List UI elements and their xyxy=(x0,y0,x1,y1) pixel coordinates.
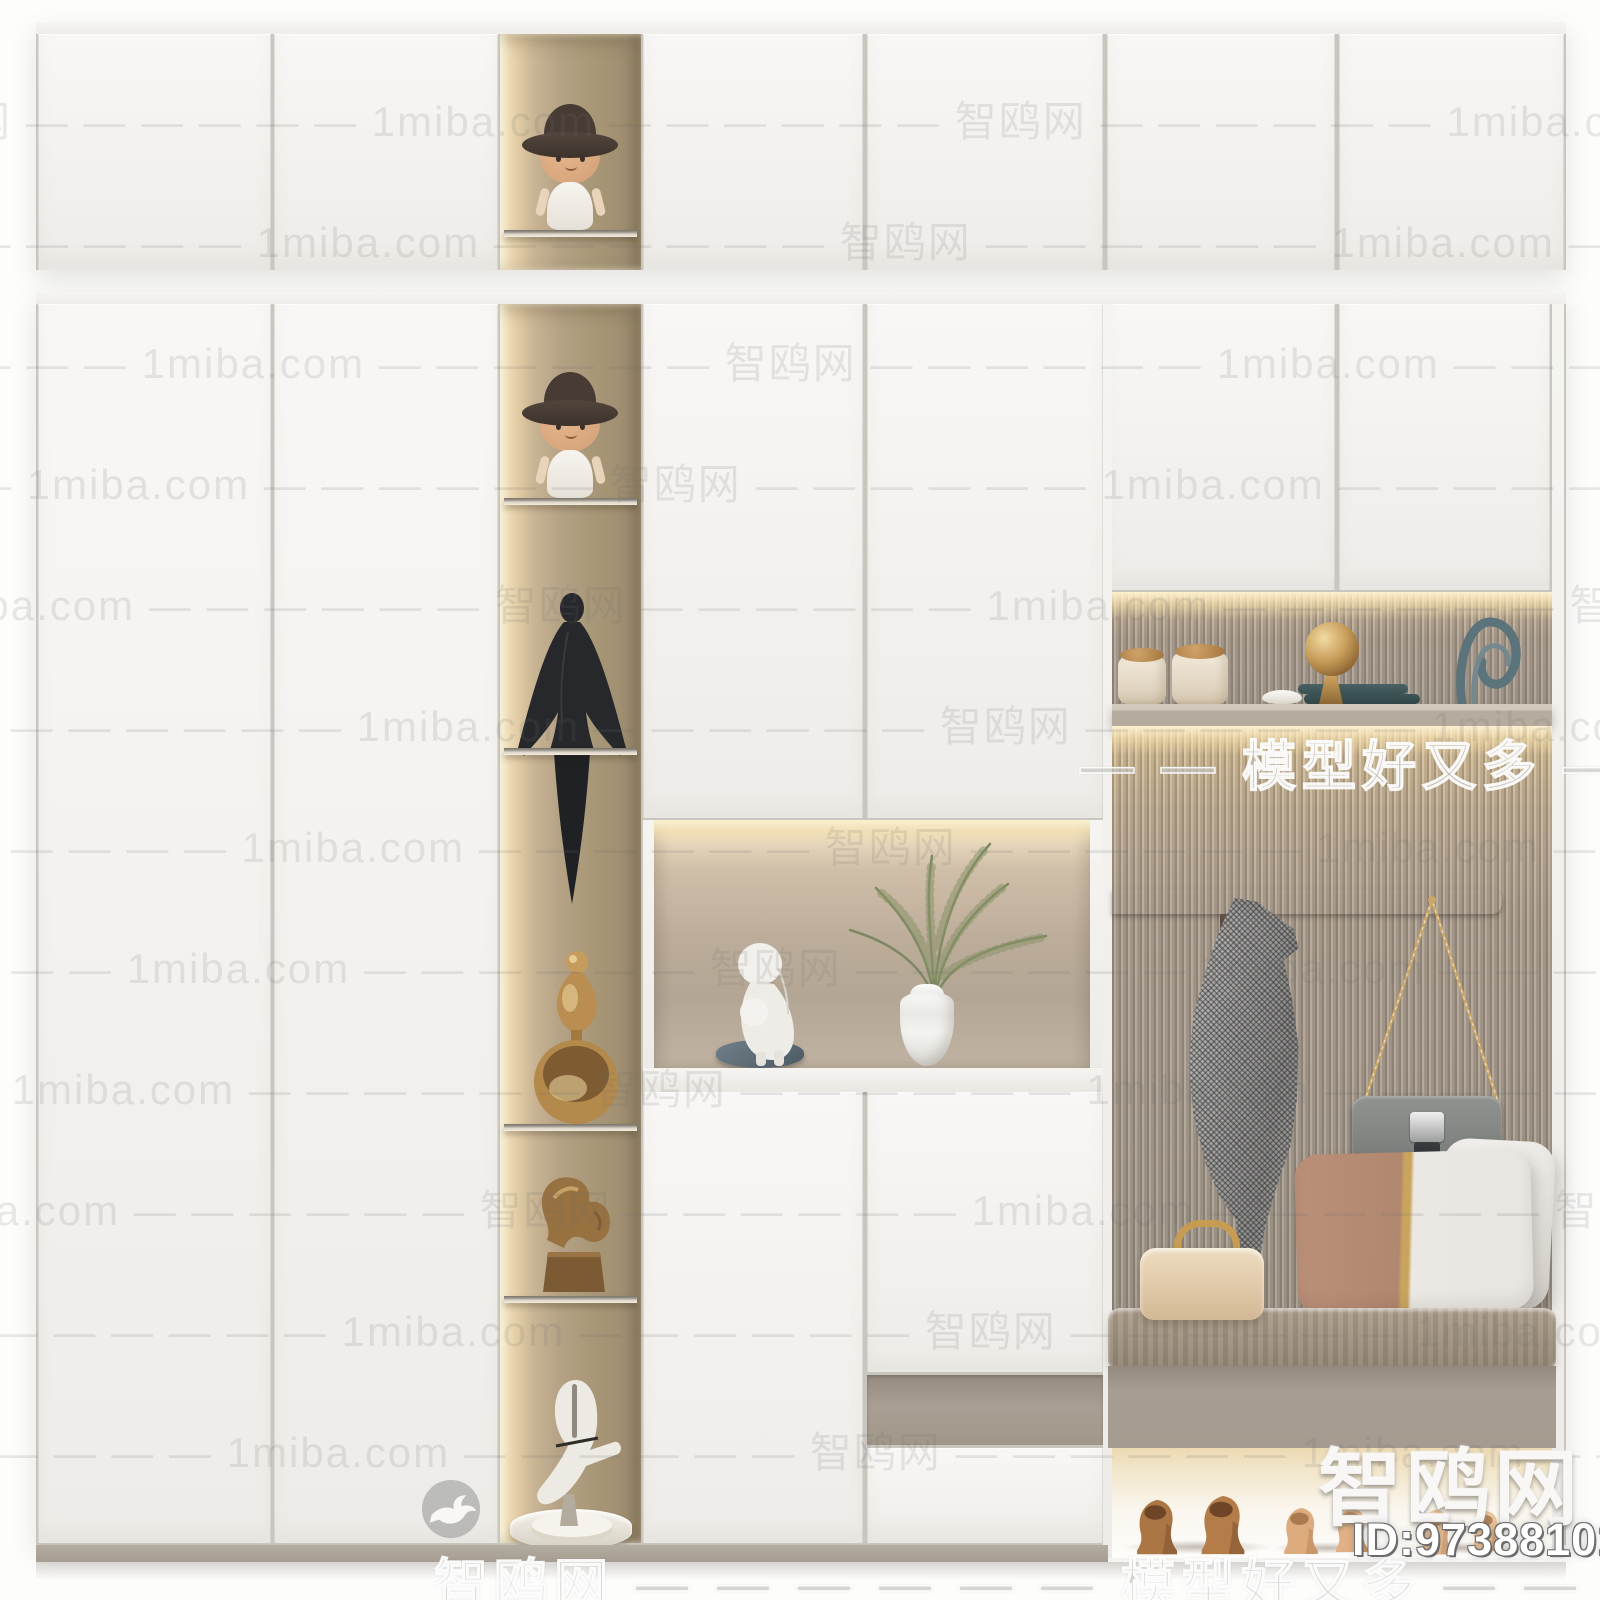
cabinet-door xyxy=(643,34,863,270)
cabinet-top-edge xyxy=(36,22,1566,34)
beige-suitcase xyxy=(1140,1248,1264,1320)
canister xyxy=(1118,656,1166,704)
white-bowl xyxy=(1262,690,1302,704)
doll-hat-brim xyxy=(522,132,618,158)
cabinet-mid-edge xyxy=(36,292,1566,304)
doll-smile xyxy=(565,162,577,171)
gray-accent-band xyxy=(867,1375,1103,1445)
teal-loop-sculpture xyxy=(1450,614,1526,704)
cabinet-door xyxy=(1107,304,1335,590)
doll-eye xyxy=(580,156,585,162)
folded-cloth xyxy=(1298,684,1408,694)
wardrobe-door-tall xyxy=(38,304,271,1543)
glass-shelf xyxy=(504,748,637,755)
canister-wood-lid xyxy=(1120,648,1164,662)
upper-cabinet-row xyxy=(36,22,1566,270)
glass-shelf xyxy=(504,1124,637,1131)
cabinet-door xyxy=(643,1092,863,1543)
doll-hat-brim xyxy=(522,400,618,426)
handbag-clasp xyxy=(1410,1112,1444,1142)
canister-wood-lid xyxy=(1175,644,1225,659)
cabinet-door xyxy=(643,304,863,818)
doll-body xyxy=(547,450,593,498)
bronze-abstract-sculpture xyxy=(534,1172,616,1296)
display-niche-column xyxy=(500,304,641,1543)
doll-arm xyxy=(591,187,607,216)
doll-body xyxy=(547,182,593,230)
seagull-logo-icon xyxy=(420,1478,482,1540)
model-id-text: ID:973881013 xyxy=(1352,1514,1600,1566)
wardrobe-door-tall xyxy=(274,304,498,1543)
doll-arm xyxy=(591,455,607,484)
glass-vase xyxy=(900,992,954,1066)
watermark-slogan-right: — — 模型好又多 — — — xyxy=(1080,722,1600,801)
cabinet-door xyxy=(1107,34,1335,270)
gold-gourd-sculpture xyxy=(530,950,622,1128)
center-display-niche xyxy=(654,820,1090,1068)
cabinet-door xyxy=(1339,304,1550,590)
glass-shelf xyxy=(504,230,637,237)
niche-sill xyxy=(643,1068,1103,1092)
canister xyxy=(1172,652,1228,704)
doll-eye xyxy=(556,424,561,430)
glass-shelf xyxy=(504,1296,637,1303)
wardrobe-product-render: 智鸥网 — — — — — — 1miba.com — — — — — — 智鸥… xyxy=(0,0,1600,1600)
cabinet-door xyxy=(274,34,498,270)
cabinet-door xyxy=(867,304,1103,818)
lower-cabinet-row xyxy=(36,292,1566,1545)
gold-sphere-ornament xyxy=(1305,622,1359,676)
doll-figurine xyxy=(514,98,626,230)
glass-shelf xyxy=(504,498,637,505)
colorblock-pillow xyxy=(1294,1149,1534,1315)
cabinet-door xyxy=(38,34,271,270)
cabinet-door xyxy=(867,34,1103,270)
display-niche-upper xyxy=(500,34,641,270)
cabinet-door xyxy=(1339,34,1564,270)
center-niche-frame xyxy=(643,820,1103,1092)
green-branches xyxy=(784,826,1084,1006)
white-figurine xyxy=(722,938,826,1068)
doll-smile xyxy=(565,430,577,439)
doll-figurine xyxy=(514,366,626,498)
cabinet-door xyxy=(867,1092,1103,1372)
doll-eye xyxy=(556,156,561,162)
doll-eye xyxy=(580,424,585,430)
